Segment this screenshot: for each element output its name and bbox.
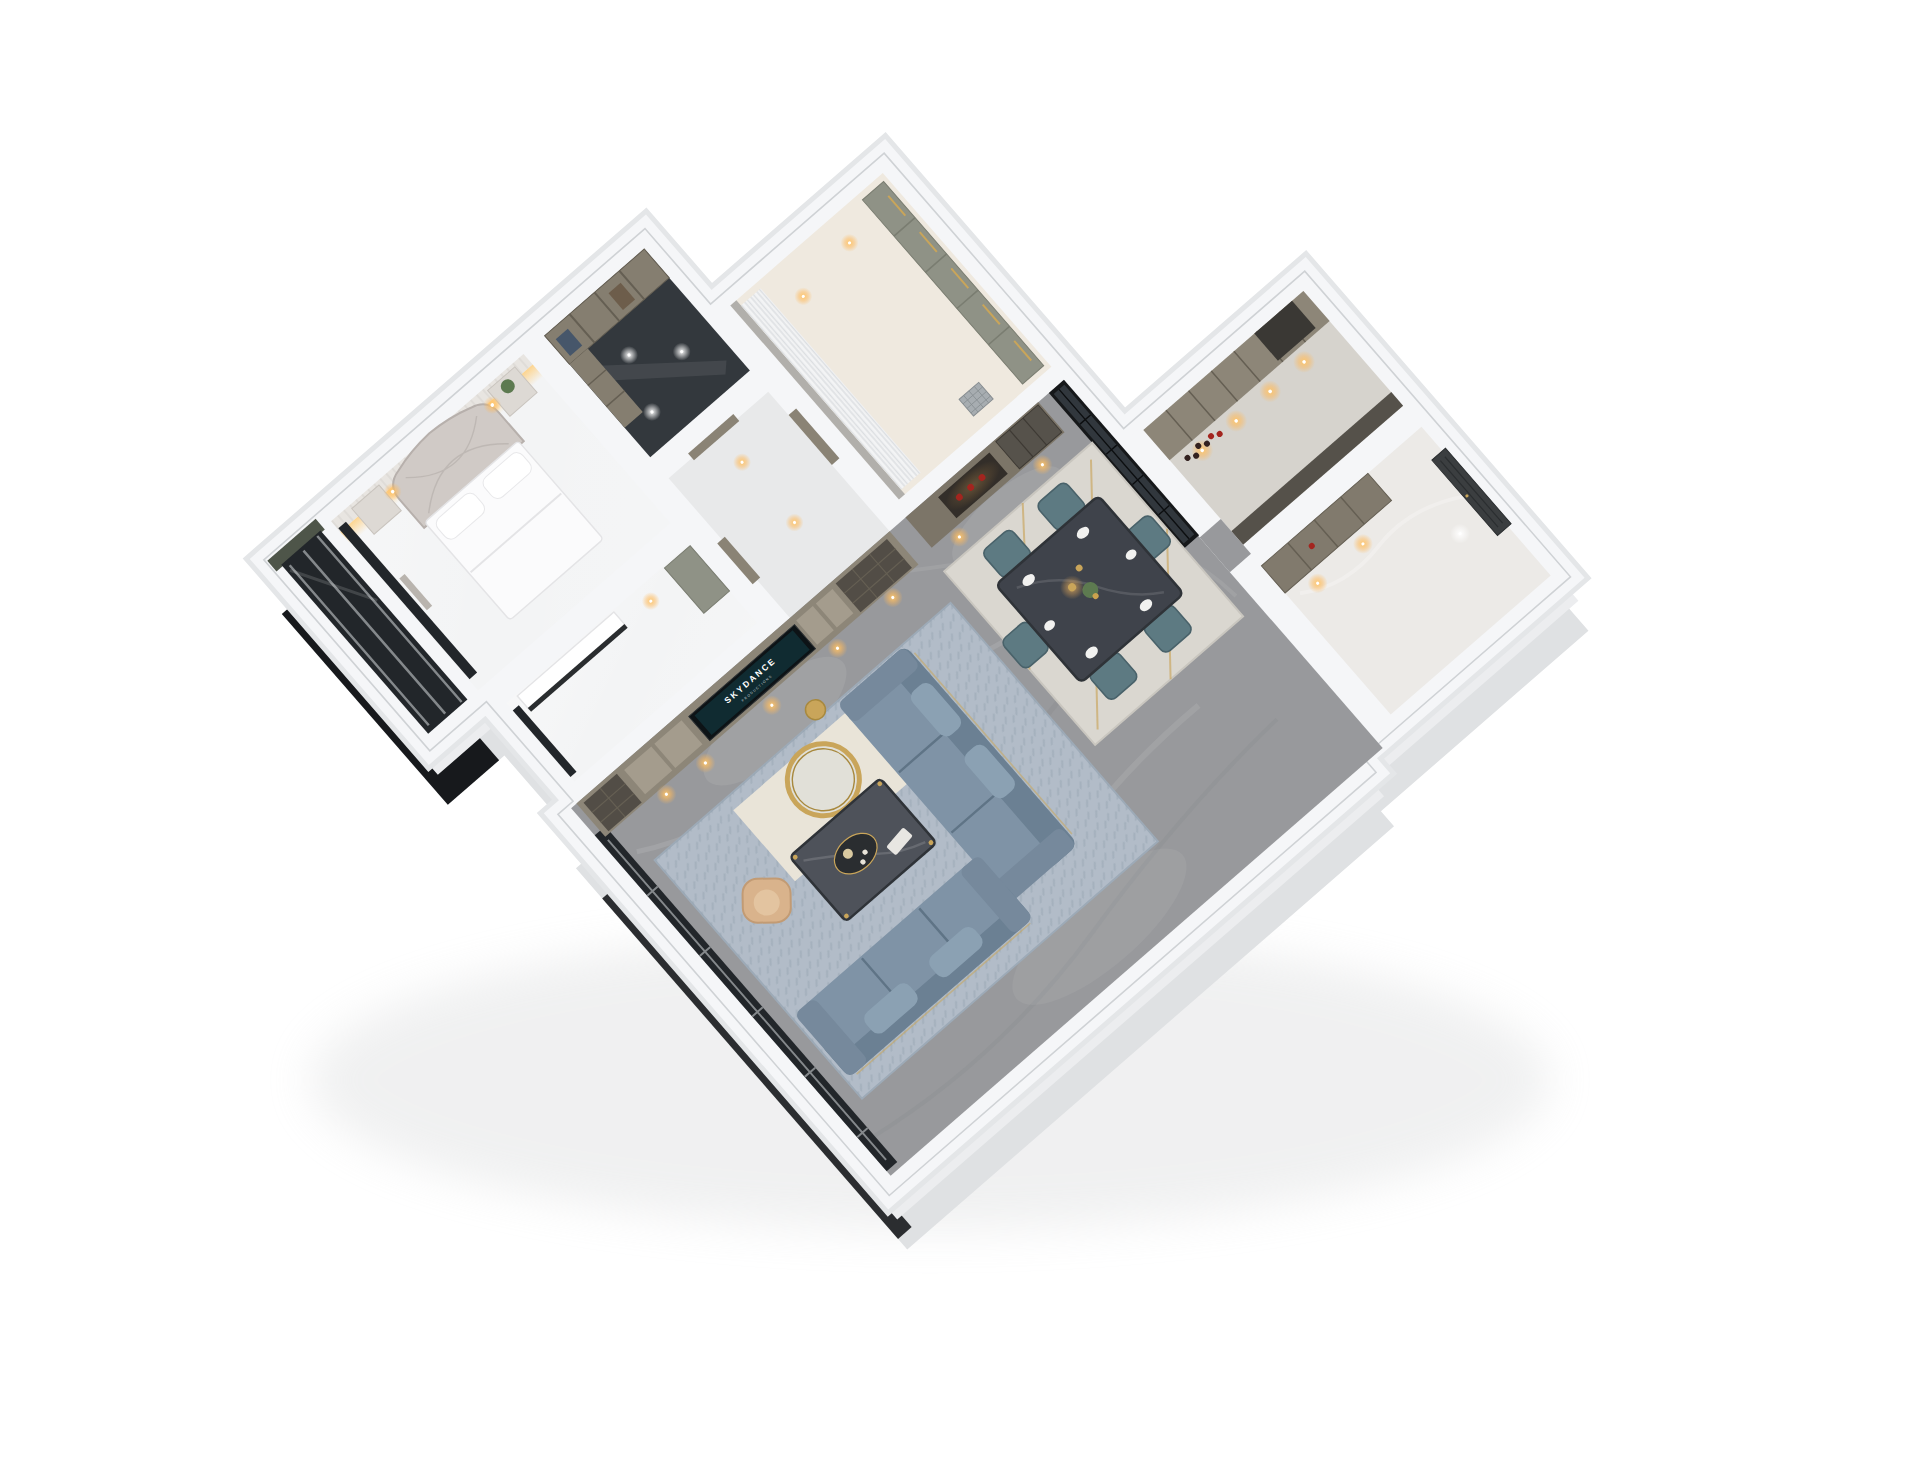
tan-accent-chair (742, 878, 791, 923)
apartment-3d-floorplan: SKYDANCE PRODUCTIONS (0, 0, 1920, 1484)
apartment-render-canvas: SKYDANCE PRODUCTIONS (0, 0, 1920, 1484)
